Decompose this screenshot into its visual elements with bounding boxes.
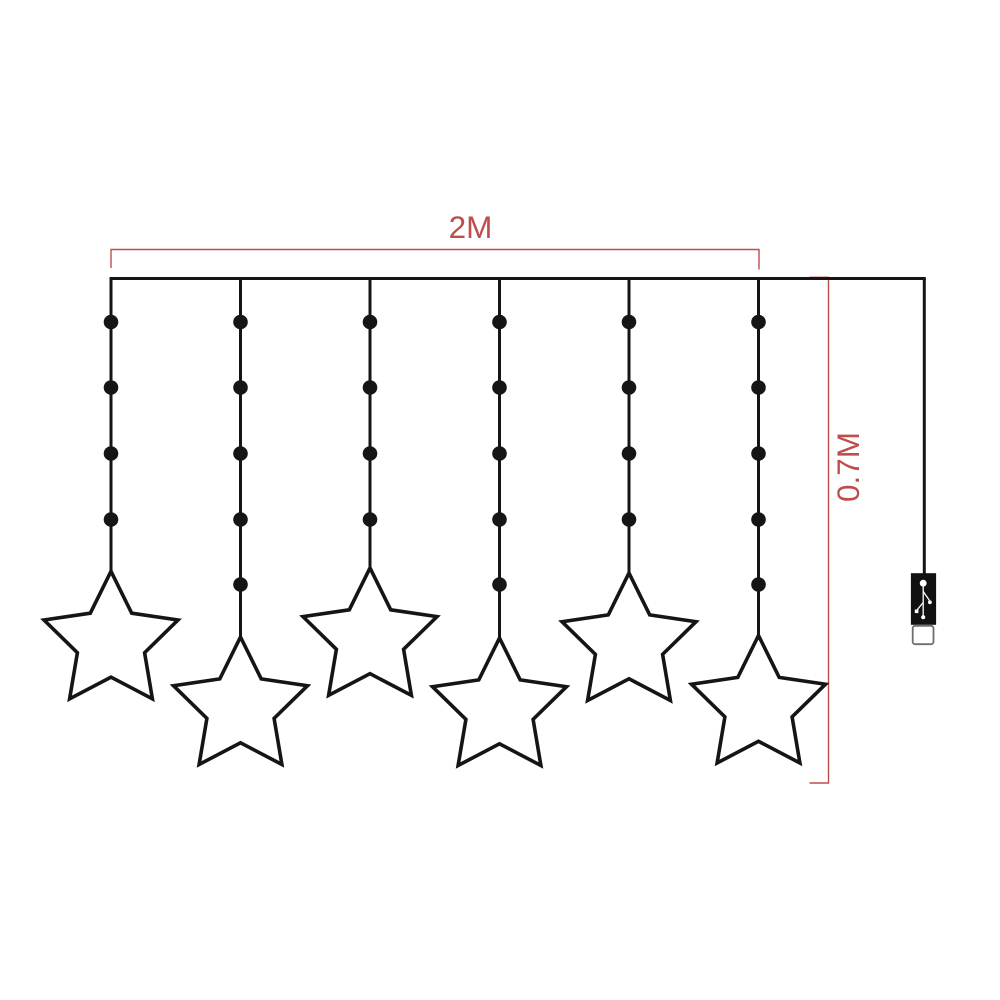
svg-text:2M: 2M <box>449 209 493 245</box>
svg-text:0.7M: 0.7M <box>830 432 866 502</box>
